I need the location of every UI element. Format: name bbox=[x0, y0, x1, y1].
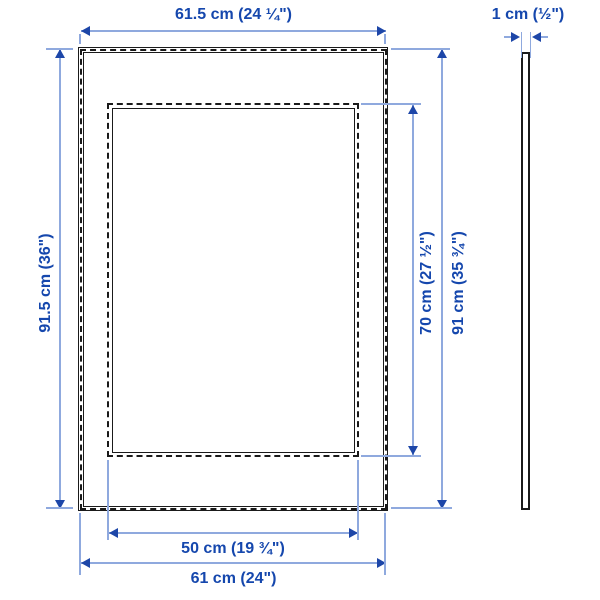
arrow-up-icon bbox=[437, 49, 447, 58]
arrow-down-icon bbox=[408, 446, 418, 455]
frame-opening-outline bbox=[112, 108, 355, 453]
frame-side-profile bbox=[521, 52, 530, 510]
extension-line bbox=[79, 513, 81, 575]
dimension-line bbox=[540, 36, 548, 38]
extension-line bbox=[46, 507, 73, 509]
extension-line bbox=[46, 48, 73, 50]
extension-line bbox=[107, 460, 109, 540]
dimension-line bbox=[81, 30, 386, 32]
dim-label-outer-height-right: 91 cm (35 ¾") bbox=[450, 231, 468, 335]
dim-label-outer-height-left: 91.5 cm (36") bbox=[37, 233, 55, 332]
extension-line bbox=[391, 507, 452, 509]
arrow-up-icon bbox=[55, 49, 65, 58]
dimension-line bbox=[59, 49, 61, 509]
extension-line bbox=[361, 455, 421, 457]
arrow-right-icon bbox=[511, 32, 520, 42]
arrow-left-icon bbox=[81, 558, 90, 568]
arrow-left-icon bbox=[81, 26, 90, 36]
arrow-left-icon bbox=[109, 528, 118, 538]
dim-label-outer-width-top: 61.5 cm (24 ¼") bbox=[81, 6, 386, 24]
dimension-line bbox=[109, 532, 358, 534]
extension-line bbox=[357, 460, 359, 540]
dimension-line bbox=[441, 49, 443, 509]
extension-line bbox=[391, 48, 450, 50]
arrow-up-icon bbox=[408, 105, 418, 114]
extension-line bbox=[384, 513, 386, 575]
dimension-line bbox=[81, 562, 386, 564]
extension-line bbox=[79, 34, 81, 44]
leader-line bbox=[530, 32, 532, 58]
extension-line bbox=[384, 34, 386, 44]
dim-label-opening-height: 70 cm (27 ½") bbox=[418, 231, 436, 335]
dim-label-opening-width: 50 cm (19 ¾") bbox=[83, 540, 383, 558]
leader-line bbox=[521, 32, 523, 58]
product-dimension-diagram: 61.5 cm (24 ¼") 1 cm (½") 91.5 cm (36") … bbox=[0, 0, 600, 600]
extension-line bbox=[361, 103, 421, 105]
dim-label-thickness: 1 cm (½") bbox=[478, 6, 578, 24]
dimension-line bbox=[412, 105, 414, 455]
frame-opening-dashed-outline bbox=[107, 103, 359, 457]
arrow-left-icon bbox=[532, 32, 541, 42]
dim-label-outer-width-bottom: 61 cm (24") bbox=[81, 570, 386, 588]
